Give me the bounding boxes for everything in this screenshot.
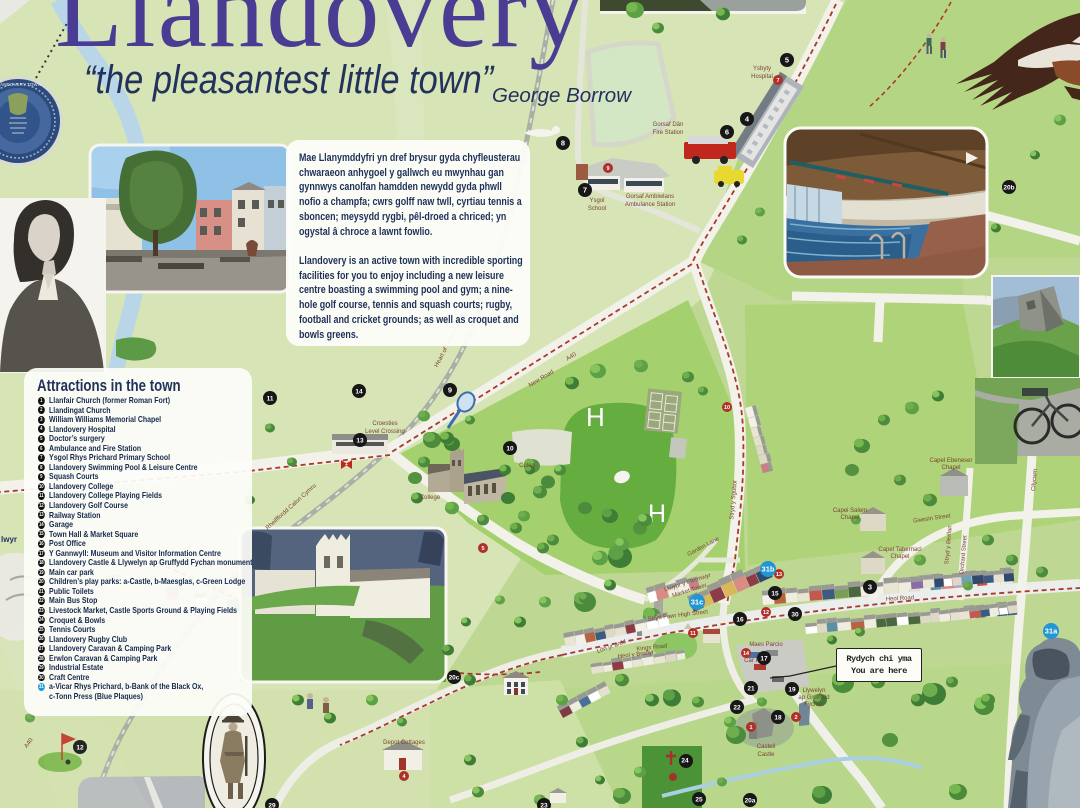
- svg-text:Ysgol: Ysgol: [589, 198, 604, 204]
- svg-text:9: 9: [606, 166, 609, 172]
- svg-text:18: 18: [774, 714, 782, 721]
- svg-text:21: 21: [747, 685, 755, 692]
- svg-text:Fire Station: Fire Station: [653, 130, 684, 136]
- svg-text:19: 19: [788, 686, 796, 693]
- svg-text:Level Crossing: Level Crossing: [365, 429, 405, 435]
- svg-text:Capel Tabernacl: Capel Tabernacl: [878, 547, 921, 553]
- svg-text:H: H: [648, 500, 666, 528]
- svg-text:24: 24: [681, 757, 689, 764]
- svg-text:20a: 20a: [745, 797, 756, 804]
- svg-text:5: 5: [481, 546, 484, 552]
- svg-text:3: 3: [868, 582, 872, 591]
- svg-text:Gorsaf Dân: Gorsaf Dân: [653, 122, 684, 128]
- svg-text:Chapel: Chapel: [840, 515, 859, 521]
- svg-text:15: 15: [771, 590, 779, 597]
- svg-text:5: 5: [785, 55, 789, 64]
- svg-text:11: 11: [267, 395, 274, 402]
- svg-text:H: H: [586, 402, 605, 432]
- svg-text:31c: 31c: [691, 598, 704, 607]
- svg-text:Capel Salem: Capel Salem: [833, 508, 867, 514]
- svg-text:13: 13: [776, 572, 782, 578]
- svg-text:Chapel: Chapel: [941, 465, 960, 471]
- svg-text:20b: 20b: [1003, 184, 1014, 191]
- svg-text:13: 13: [356, 437, 364, 444]
- svg-text:Depot Cottages: Depot Cottages: [383, 740, 425, 746]
- svg-text:1: 1: [749, 725, 752, 731]
- svg-text:12: 12: [763, 610, 769, 616]
- svg-text:Coleg: Coleg: [519, 463, 535, 469]
- svg-text:Capel Ebeneser: Capel Ebeneser: [929, 458, 972, 464]
- svg-text:11: 11: [690, 631, 696, 637]
- svg-text:Castell: Castell: [757, 744, 775, 750]
- svg-text:25: 25: [695, 796, 703, 803]
- svg-text:LLANDOVERY TOWN: LLANDOVERY TOWN: [0, 82, 41, 87]
- svg-text:2: 2: [794, 715, 797, 721]
- svg-text:8: 8: [561, 138, 565, 147]
- svg-text:7: 7: [776, 78, 779, 84]
- svg-text:lwyr: lwyr: [1, 535, 17, 544]
- svg-text:7: 7: [583, 185, 587, 194]
- svg-text:30: 30: [791, 611, 799, 618]
- svg-text:Ysbyty: Ysbyty: [753, 66, 771, 72]
- svg-text:22: 22: [733, 704, 741, 711]
- svg-text:23: 23: [540, 802, 548, 808]
- svg-text:31b: 31b: [762, 565, 775, 574]
- svg-text:ap Gruffydd: ap Gruffydd: [798, 695, 829, 701]
- svg-text:Croesties: Croesties: [372, 421, 397, 427]
- svg-text:Maes Parcio: Maes Parcio: [749, 642, 783, 648]
- svg-text:Fychan: Fychan: [804, 702, 824, 708]
- svg-text:6: 6: [725, 127, 729, 136]
- svg-text:10: 10: [724, 405, 730, 411]
- svg-text:Hospital: Hospital: [751, 74, 773, 80]
- svg-text:17: 17: [760, 655, 768, 662]
- svg-text:20c: 20c: [449, 674, 460, 681]
- svg-text:Chapel: Chapel: [890, 554, 909, 560]
- svg-text:29: 29: [268, 802, 276, 808]
- svg-text:9: 9: [448, 385, 452, 394]
- svg-text:College: College: [420, 495, 441, 501]
- svg-text:14: 14: [355, 388, 363, 395]
- svg-text:10: 10: [506, 445, 514, 452]
- svg-text:School: School: [588, 206, 606, 212]
- svg-text:31a: 31a: [1045, 627, 1058, 636]
- svg-text:Llywelyn: Llywelyn: [802, 688, 825, 694]
- svg-text:Gorsaf Ambiwlans: Gorsaf Ambiwlans: [626, 194, 674, 200]
- svg-text:14: 14: [743, 651, 750, 657]
- svg-text:Castle: Castle: [757, 752, 775, 758]
- svg-text:16: 16: [736, 616, 744, 623]
- svg-text:Ambulance Station: Ambulance Station: [625, 202, 675, 208]
